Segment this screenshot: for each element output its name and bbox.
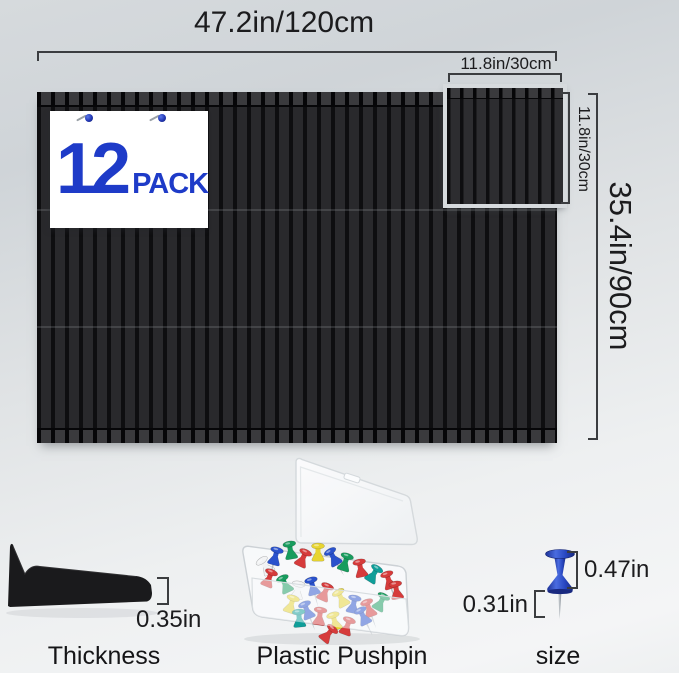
thickness-top-tick — [157, 577, 169, 579]
pushpin-icon — [153, 113, 169, 125]
panel-bottom-edge — [37, 428, 557, 443]
pin-head-top-tick — [567, 551, 578, 553]
board-height-dimension-line — [596, 93, 598, 440]
size-caption: size — [536, 642, 580, 671]
tile-height-top-tick — [561, 92, 570, 94]
single-tile-panel — [443, 84, 567, 208]
board-width-dimension-line — [37, 51, 557, 53]
tile-height-bottom-tick — [561, 202, 570, 204]
pushpin-caption: Plastic Pushpin — [257, 642, 428, 671]
pushpin-icon — [80, 113, 96, 125]
pushpin-icon — [312, 543, 325, 561]
tile-top-edge — [447, 88, 563, 99]
pin-needle-top-tick — [534, 590, 545, 592]
board-width-dimension-label: 47.2in/120cm — [194, 6, 374, 40]
thickness-bracket-line — [167, 577, 169, 605]
tile-height-dimension-label: 11.8in/30cm — [574, 106, 592, 192]
pin-head — [85, 114, 93, 122]
pin-head-bottom-tick — [567, 587, 578, 589]
product-infographic: 47.2in/120cm 12 PACK 11.8in/30cm 11.8in/… — [0, 0, 679, 673]
pin-needle — [558, 592, 561, 619]
thickness-caption: Thickness — [48, 642, 161, 671]
panel-seam — [37, 326, 557, 328]
pin-head — [158, 114, 166, 122]
board-width-left-tick — [37, 51, 39, 61]
tile-width-dimension-line — [448, 73, 562, 75]
pack-label: 12 PACK — [56, 133, 208, 205]
pin-head-bracket-line — [576, 551, 578, 589]
board-height-bottom-tick — [588, 438, 598, 440]
pushpin-box-illustration — [236, 456, 436, 648]
pin-needle-bracket-line — [534, 590, 536, 618]
pin-needle-bottom-tick — [534, 616, 545, 618]
board-height-top-tick — [588, 93, 598, 95]
pin-base-rim — [548, 589, 573, 594]
pack-count-card: 12 PACK — [50, 111, 208, 228]
pin-head-value: 0.47in — [584, 556, 649, 584]
thickness-value: 0.35in — [136, 606, 201, 634]
tile-width-right-tick — [560, 73, 562, 82]
tile-height-dimension-line — [568, 92, 570, 204]
tile-width-dimension-label: 11.8in/30cm — [460, 54, 551, 74]
pack-count: 12 — [56, 133, 126, 205]
board-height-dimension-label: 35.4in/90cm — [602, 182, 638, 351]
pin-needle-value: 0.31in — [462, 591, 528, 619]
board-width-right-tick — [555, 51, 557, 61]
pack-word: PACK — [132, 168, 208, 201]
thickness-bottom-tick — [157, 603, 169, 605]
tile-width-left-tick — [448, 73, 450, 82]
